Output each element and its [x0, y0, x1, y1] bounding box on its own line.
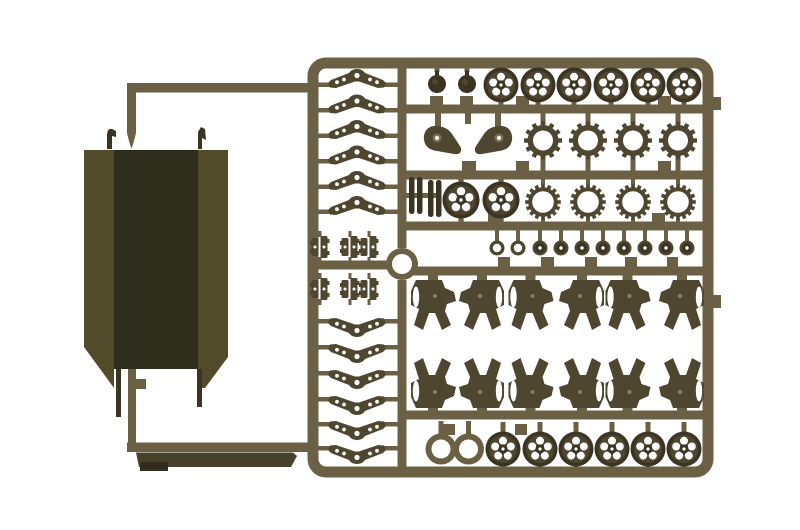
hull-interior [114, 150, 198, 369]
divider-runner-lower [398, 280, 407, 472]
cross-runner-3 [402, 171, 708, 180]
gate-tab [625, 257, 637, 267]
gate-tab [515, 424, 527, 435]
feed-runner-top [127, 83, 317, 93]
cross-runner-2 [402, 105, 708, 114]
hull-left-wall [84, 150, 114, 388]
gate-tab [462, 161, 476, 171]
hull-leg [197, 369, 202, 407]
floor-strip-tab [140, 462, 168, 471]
shock-absorber [436, 180, 442, 217]
shock-absorber [409, 177, 415, 214]
cross-runner-5 [402, 267, 708, 276]
gate-tab [516, 161, 529, 171]
hull-drop-runner [128, 369, 136, 444]
feed-runner-drop [127, 83, 136, 133]
gate-stub [465, 112, 471, 124]
photo-canvas [0, 0, 800, 530]
gate-tab [658, 161, 671, 171]
gate-tab [541, 257, 554, 267]
gate-tab [652, 213, 665, 223]
feed-runner-bottom [127, 443, 317, 453]
shock-absorber [428, 180, 434, 217]
gate-tab [443, 424, 455, 435]
cross-runner-6 [402, 411, 708, 420]
divider-runner-upper [398, 63, 407, 248]
shock-absorber [417, 177, 423, 214]
gate-tab [430, 96, 443, 105]
gate-tab [585, 257, 597, 267]
hull-right-wall [198, 150, 228, 388]
gate-tab [498, 257, 510, 267]
gate-tab [460, 96, 473, 105]
runner-tab [136, 379, 146, 389]
frame-stub [712, 97, 721, 110]
gate-tab [667, 257, 678, 267]
hull-leg [116, 369, 121, 417]
locator-ring-hole [392, 254, 412, 274]
frame-stub [712, 295, 721, 308]
